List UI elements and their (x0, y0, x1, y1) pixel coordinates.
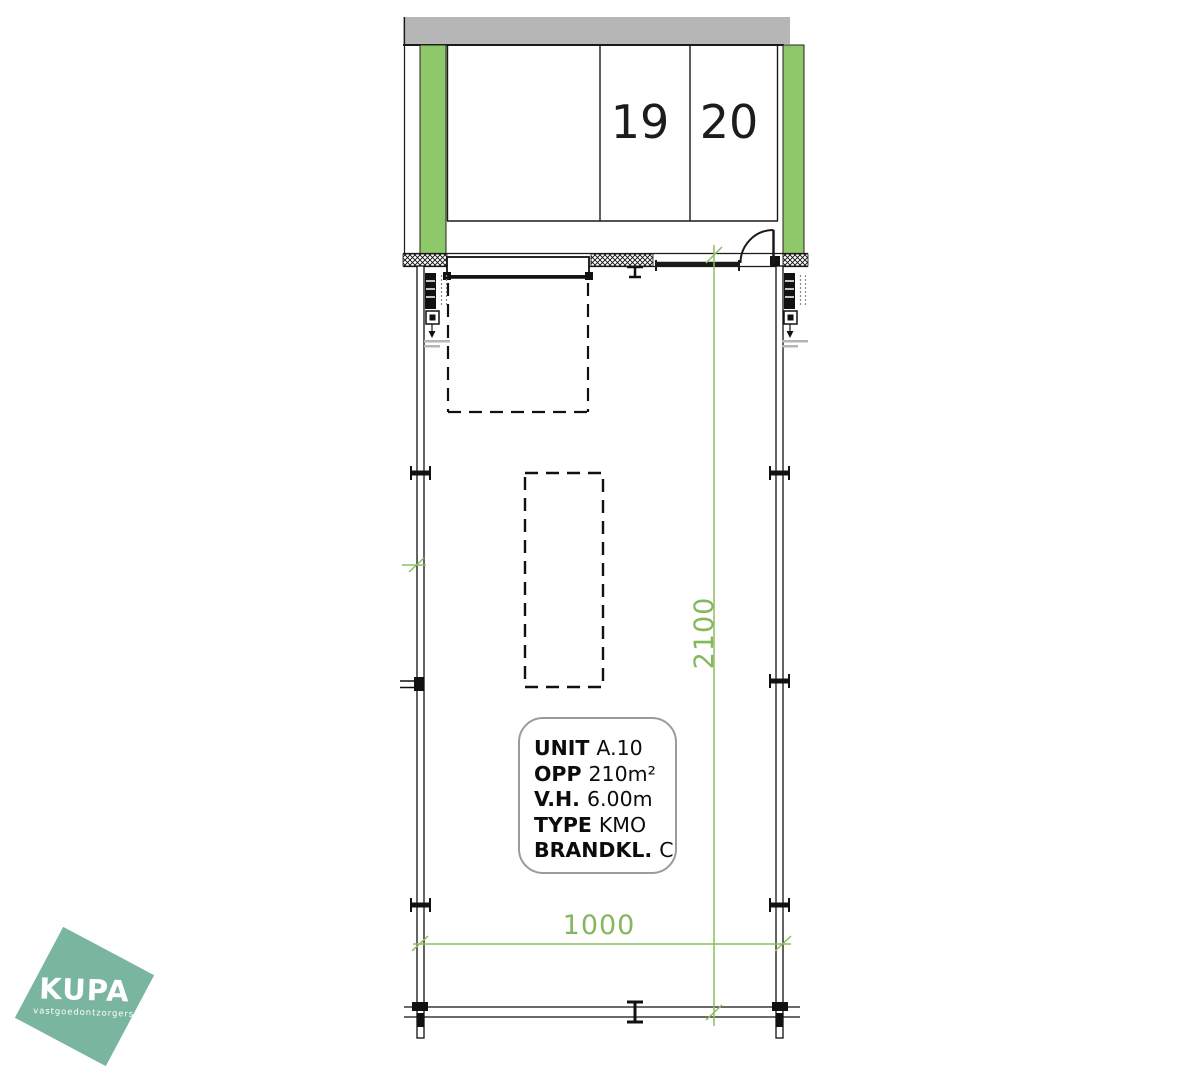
dimension-label-2100: 2100 (689, 588, 719, 678)
left-wall-fixture (400, 677, 424, 691)
left-wall (417, 266, 424, 1038)
info-row-vh: V.H.6.00m (534, 787, 675, 813)
dimension-lines (402, 245, 791, 1026)
floor-plan-canvas: 19 20 1000 2100 UNITA.10 OPP210m² V.H.6.… (0, 0, 1200, 1080)
top-wall-beam-marker (627, 267, 643, 277)
reserved-zone-dashed (525, 473, 603, 687)
parking-stall-20-label: 20 (691, 97, 767, 148)
kupa-logo-wordmark: KUPA (34, 974, 136, 1007)
door-swing-arc (741, 230, 774, 263)
info-row-brandkl: BRANDKL.C (534, 838, 675, 864)
gate-opening-projection (448, 283, 588, 412)
info-row-unit: UNITA.10 (534, 736, 675, 762)
green-column-strip-left (420, 45, 446, 258)
info-row-opp: OPP210m² (534, 762, 675, 788)
unit-info-box: UNITA.10 OPP210m² V.H.6.00m TYPEKMO BRAN… (518, 717, 677, 874)
info-row-type: TYPEKMO (534, 813, 675, 839)
utility-meter-right (782, 273, 808, 348)
sectional-gate (443, 257, 593, 280)
parking-stall-19-label: 19 (602, 97, 678, 148)
canopy-slab (403, 17, 790, 44)
bottom-wall (404, 1002, 800, 1027)
dimension-label-1000: 1000 (554, 910, 644, 941)
utility-meter-left (424, 273, 450, 348)
green-column-strip-right (783, 45, 804, 258)
right-wall (776, 266, 783, 1038)
